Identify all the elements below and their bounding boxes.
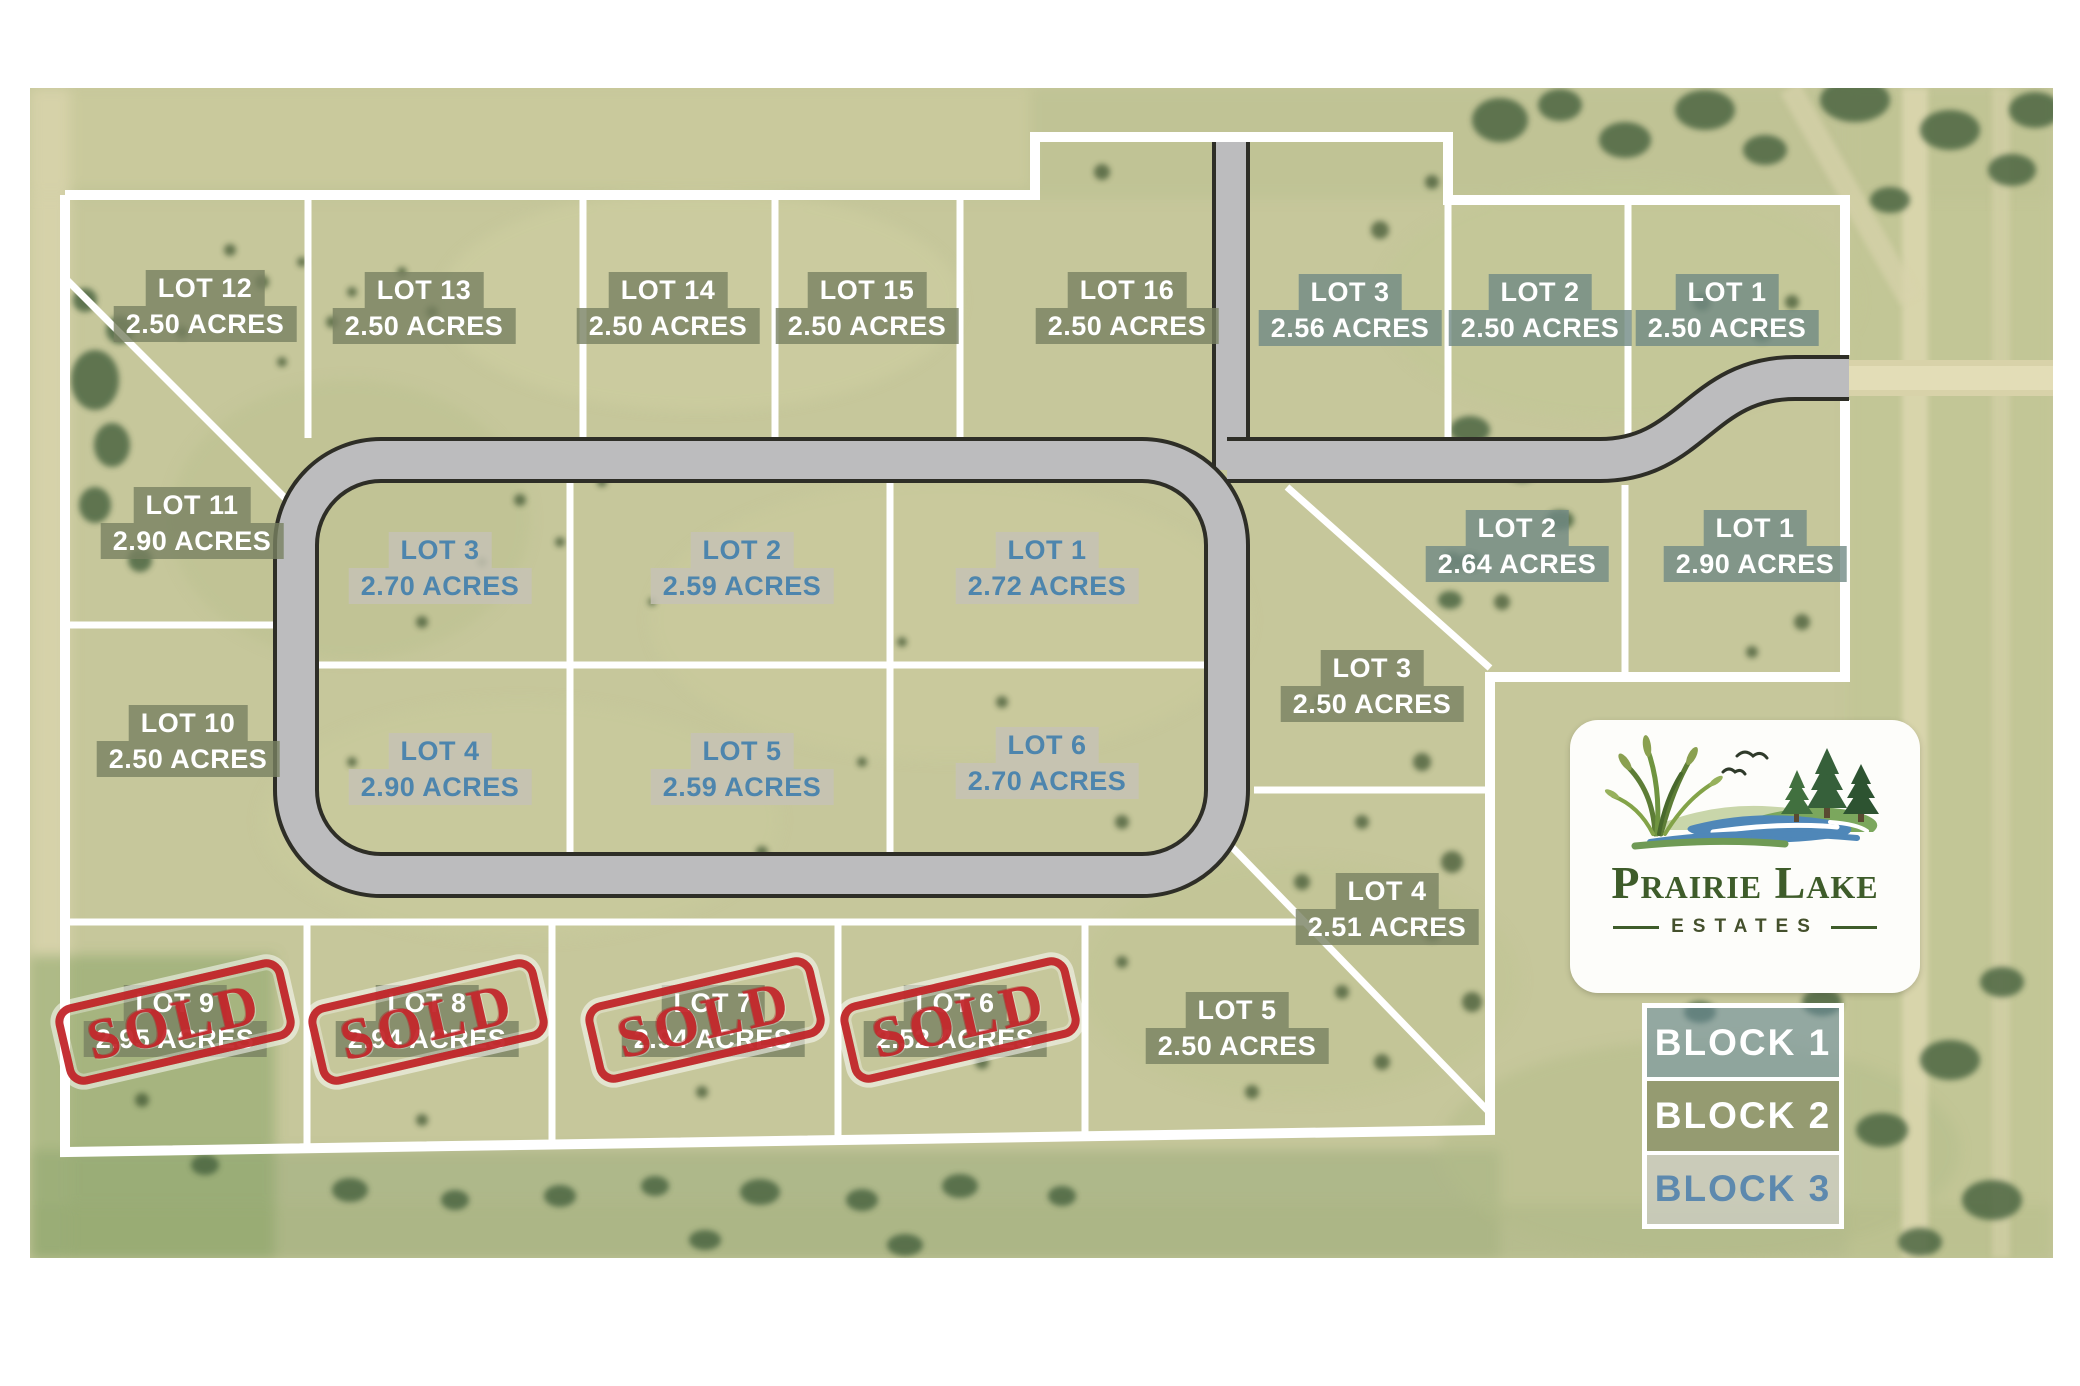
logo-rule-left	[1613, 926, 1659, 929]
logo-subtitle-text: ESTATES	[1671, 916, 1819, 938]
prairie-lake-logo-art	[1595, 730, 1895, 862]
pine-trees-icon	[1781, 748, 1879, 822]
logo-title: Prairie Lake	[1611, 860, 1878, 906]
logo-rule-right	[1831, 926, 1877, 929]
plat-map-page: LOT 122.50 ACRES LOT 132.50 ACRES LOT 14…	[0, 0, 2080, 1386]
legend-block-3: BLOCK 3	[1647, 1151, 1839, 1224]
legend-block-1: BLOCK 1	[1647, 1008, 1839, 1077]
block-legend: BLOCK 1 BLOCK 2 BLOCK 3	[1642, 1003, 1844, 1229]
dirt-road-right	[1902, 88, 1928, 1258]
legend-block-2: BLOCK 2	[1647, 1077, 1839, 1150]
developer-logo-card: Prairie Lake ESTATES	[1570, 720, 1920, 993]
logo-subtitle: ESTATES	[1613, 916, 1877, 938]
birds-icon	[1723, 752, 1767, 774]
